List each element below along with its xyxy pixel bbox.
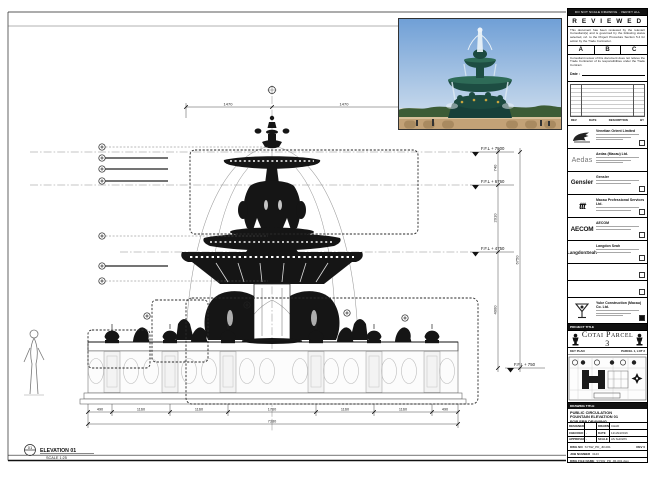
title-block: DO NOT SCALE DRAWING · VERIFY ALL DIMENS… — [567, 8, 648, 463]
consultant-info: Gensler — [596, 172, 647, 194]
reviewed-date-row: Date : — [568, 70, 647, 78]
top-note-strip: DO NOT SCALE DRAWING · VERIFY ALL DIMENS… — [568, 9, 647, 16]
consultant-info: AECOM — [596, 218, 647, 240]
rev-value: REV 0 — [636, 445, 645, 449]
photo-basin — [398, 117, 562, 130]
consultant-info: Langdon Seah — [596, 241, 647, 263]
address-lines — [596, 180, 639, 181]
consultant-name: Macau Professional Services Ltd. — [596, 198, 645, 206]
dim-seg: 1760 — [268, 408, 276, 412]
upper-figure-group — [230, 181, 314, 237]
consultant-name: AECOM — [596, 221, 645, 225]
consultant-row-aedas: Aedas Aedas (Macau) Ltd. — [568, 149, 647, 172]
revision-column-divider — [581, 85, 582, 116]
scale-value: AS SHOWN — [610, 437, 647, 443]
dim-right-total: 6750 — [515, 255, 520, 265]
address-lines — [596, 162, 623, 163]
project-title-row: Cotai Parcel 3 — [568, 331, 647, 348]
elevation-title: 01 ELEVATION 01 SCALE 1:25 — [25, 445, 95, 460]
consultant-row-langdon-seah: LangdonSeah Langdon Seah — [568, 241, 647, 264]
job-number-value: 3123 — [592, 452, 599, 456]
job-number-label: JOB NUMBER — [570, 452, 590, 456]
address-lines — [596, 183, 631, 184]
checked-label: CHECKED — [568, 430, 585, 437]
fountain-photo-image — [398, 18, 562, 130]
address-lines — [596, 315, 623, 316]
reviewed-paragraph-1: This document has been reviewed by the r… — [568, 27, 647, 45]
consultant-info: Venetian Orient Limited — [596, 126, 647, 148]
address-lines — [596, 310, 639, 311]
dwg-no-value: SYSW_PD_JR-001 — [585, 445, 611, 449]
level-label: F.F.L + 750 — [514, 362, 536, 367]
project-title: Cotai Parcel 3 — [580, 331, 635, 348]
key-plan-parcel: PARCEL 1, LOT 2 — [621, 349, 645, 353]
designed-value — [585, 423, 597, 430]
consultant-checkbox — [639, 140, 646, 147]
key-plan-label: KEY PLAN — [570, 349, 585, 353]
dim-seg: 1160 — [137, 408, 145, 412]
fountain-reference-photo — [398, 18, 562, 130]
scale-figure — [24, 330, 44, 395]
revision-rows — [570, 84, 645, 117]
consultant-row-macau-professional: ttt Macau Professional Services Ltd. — [568, 195, 647, 218]
reviewed-stamp: R E V I E W E D This document has been r… — [568, 16, 647, 82]
revision-col-desc: DESCRIPTION — [609, 118, 628, 122]
dim-right-1: 740 — [493, 164, 498, 171]
dwg-no-label: DWG NO — [570, 445, 583, 449]
reviewed-title: R E V I E W E D — [568, 16, 647, 27]
drawing-info-grid: DESIGNED DRAWN CHAD CHECKED - DATE 12/JA… — [568, 423, 647, 443]
reviewed-option-a: A — [568, 46, 595, 54]
drawing-title: PUBLIC CIRCULATION FOUNTAIN ELEVATION 01… — [568, 409, 647, 423]
dimension-bottom: 490 1160 1160 1760 1160 1160 490 7380 — [86, 404, 460, 428]
drawn-label: DRAWN — [597, 423, 610, 430]
key-plan-building-block — [582, 370, 628, 389]
dim-top-left: 1470 — [224, 102, 234, 107]
elevation-label: ELEVATION 01 — [40, 448, 76, 454]
dim-right-2: 2010 — [493, 213, 498, 223]
reviewed-options: A B C — [568, 45, 647, 55]
consultant-checkbox — [639, 186, 646, 193]
checked-value: - — [585, 430, 597, 437]
consultant-name: Venetian Orient Limited — [596, 129, 645, 133]
approved-label: APPROVED — [568, 437, 585, 443]
address-lines — [596, 139, 623, 140]
address-lines — [596, 249, 639, 250]
contractor-row: Yuke Construction (Macau) Co. Ltd. — [568, 298, 647, 324]
address-lines — [596, 207, 639, 208]
consultant-checkbox — [639, 232, 646, 239]
job-number-row: JOB NUMBER 3123 — [568, 451, 647, 458]
address-lines — [596, 134, 639, 135]
contractor-info: Yuke Construction (Macau) Co. Ltd. — [596, 298, 647, 323]
empty-consultant-box — [568, 281, 647, 298]
consultant-info: Aedas (Macau) Ltd. — [596, 149, 647, 171]
aedas-logo: Aedas — [568, 149, 596, 171]
revision-header: REV DATE DESCRIPTION BY — [568, 117, 647, 124]
fountain-ornament-icon — [635, 333, 644, 346]
consultant-checkbox — [639, 209, 646, 216]
langdon-seah-logo: LangdonSeah — [568, 241, 596, 263]
dim-seg: 490 — [442, 408, 448, 412]
address-lines — [596, 252, 631, 253]
reviewed-option-b: B — [595, 46, 622, 54]
file-name-value: SYSW_PD_JR-001.dwg — [596, 459, 628, 463]
gensler-logo: Gensler — [568, 172, 596, 194]
dim-seg: 490 — [97, 408, 103, 412]
level-label: F.F.L + 6760 — [481, 179, 505, 184]
empty-consultant-box — [568, 264, 647, 281]
address-lines — [596, 137, 631, 138]
dim-seg: 1160 — [341, 408, 349, 412]
revision-col-by: BY — [640, 118, 644, 122]
address-lines — [596, 157, 639, 158]
dim-top-right: 1470 — [340, 102, 350, 107]
elevation-scale: SCALE 1:25 — [46, 456, 67, 460]
contractor-logo-icon — [568, 298, 596, 323]
level-label: F.F.L + 4750 — [481, 246, 505, 251]
address-lines — [596, 160, 631, 161]
project-title-label: PROJECT TITLE — [568, 324, 647, 331]
dim-bottom-total: 7380 — [268, 420, 276, 424]
upper-basin — [224, 156, 320, 184]
macau-professional-logo: ttt — [568, 195, 596, 217]
revision-column-divider — [633, 85, 634, 116]
consultant-row-gensler: Gensler Gensler — [568, 172, 647, 195]
file-name-row: DWG FILE NAME SYSW_PD_JR-001.dwg — [568, 458, 647, 463]
address-lines — [596, 229, 631, 230]
middle-basin — [181, 234, 363, 285]
key-plan-header: KEY PLAN PARCEL 1, LOT 2 — [568, 348, 647, 355]
level-markers: F.F.L + 7500 F.F.L + 6760 F.F.L + 4750 F… — [470, 146, 545, 372]
fountain-ornament-icon — [571, 333, 580, 346]
address-lines — [596, 313, 631, 314]
drawing-sheet: 1470 1470 — [0, 0, 650, 488]
consultant-name: Aedas (Macau) Ltd. — [596, 152, 645, 156]
revision-col-date: DATE — [589, 118, 596, 122]
contractor-name: Yuke Construction (Macau) Co. Ltd. — [596, 301, 645, 309]
revision-col-rev: REV — [571, 118, 577, 122]
reviewed-option-c: C — [621, 46, 647, 54]
consultant-checkbox — [639, 272, 646, 279]
revision-table: REV DATE DESCRIPTION BY — [568, 82, 647, 126]
date-value: 12/JAN/2016 — [610, 430, 647, 437]
contractor-checkbox — [639, 315, 646, 322]
reviewed-date-line — [582, 71, 645, 76]
drawn-value: CHAD — [610, 423, 647, 430]
dimension-top: 1470 1470 — [184, 102, 416, 119]
dim-seg: 1160 — [195, 408, 203, 412]
detail-marker: 01 — [28, 445, 33, 450]
consultant-checkbox — [639, 289, 646, 296]
reviewed-date-label: Date : — [570, 72, 580, 76]
reviewed-paragraph-2: Consultant review of this document does … — [568, 55, 647, 69]
consultant-row-venetian: Venetian Orient Limited — [568, 126, 647, 149]
consultant-name: Langdon Seah — [596, 244, 645, 248]
venetian-logo-icon — [568, 126, 596, 148]
address-lines — [596, 210, 631, 211]
scale-label: SCALE — [597, 437, 610, 443]
drawing-title-block: DRAWING TITLE PUBLIC CIRCULATION FOUNTAI… — [568, 403, 647, 463]
date-label: DATE — [597, 430, 610, 437]
file-name-label: DWG FILE NAME — [570, 459, 594, 463]
address-lines — [596, 226, 639, 227]
level-label: F.F.L + 7500 — [481, 146, 505, 151]
consultant-info: Macau Professional Services Ltd. — [596, 195, 647, 217]
key-plan: KEY PLAN PARCEL 1, LOT 2 — [568, 348, 647, 403]
dim-seg: 1160 — [399, 408, 407, 412]
aecom-logo: AECOM — [568, 218, 596, 240]
approved-value: - — [585, 437, 597, 443]
designed-label: DESIGNED — [568, 423, 585, 430]
consultant-checkbox — [639, 255, 646, 262]
pool-wall — [80, 342, 466, 404]
dim-right-3: 4000 — [493, 305, 498, 315]
consultant-name: Gensler — [596, 175, 645, 179]
dwg-no-row: DWG NO SYSW_PD_JR-001 REV 0 — [568, 443, 647, 450]
consultant-row-aecom: AECOM AECOM — [568, 218, 647, 241]
key-plan-map — [568, 355, 647, 402]
